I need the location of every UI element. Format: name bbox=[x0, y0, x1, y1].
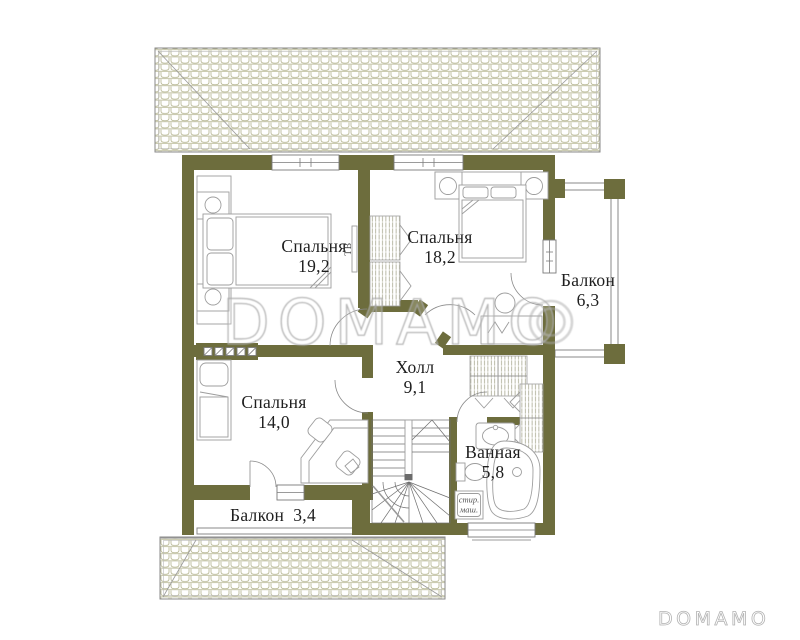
balcony-bottom-railing bbox=[197, 528, 355, 534]
room-area: 6,3 bbox=[561, 290, 615, 310]
window-top-right bbox=[394, 155, 463, 170]
door-balcony-bottom bbox=[250, 461, 276, 487]
room-name: Спальня bbox=[407, 227, 472, 247]
room-label-bathroom: Ванная 5,8 bbox=[465, 442, 521, 482]
stair-divider bbox=[405, 420, 412, 480]
room-label-hall: Холл 9,1 bbox=[396, 357, 435, 397]
room-area: 14,0 bbox=[241, 412, 306, 432]
door-bedroom3 bbox=[335, 380, 368, 413]
balcony-post bbox=[604, 179, 625, 199]
room-area: 3,4 bbox=[293, 505, 316, 525]
room-label-balcony-right: Балкон 6,3 bbox=[561, 270, 615, 310]
room-label-bedroom3: Спальня 14,0 bbox=[241, 392, 306, 432]
room-area: 19,2 bbox=[281, 256, 346, 276]
balcony-post bbox=[604, 344, 625, 364]
lamp bbox=[205, 289, 221, 305]
room-area: 5,8 bbox=[465, 462, 521, 482]
room-label-bedroom1: Спальня 19,2 bbox=[281, 236, 346, 276]
watermark-small: DOMAMO bbox=[658, 608, 769, 630]
bottom-roof bbox=[160, 537, 445, 599]
floor-plan: DOMAMO DOMAMO Спальня 19,2 Спальня 18,2 … bbox=[0, 0, 800, 640]
room-name: Холл bbox=[396, 357, 435, 377]
window-balcony-wall bbox=[543, 240, 556, 273]
window-bathroom bbox=[468, 523, 535, 540]
top-roof bbox=[155, 48, 600, 152]
room-area: 9,1 bbox=[396, 377, 435, 397]
window-top-left bbox=[272, 155, 339, 170]
single-bed bbox=[197, 360, 231, 440]
corner-desk bbox=[301, 416, 368, 483]
stair-winder-fan bbox=[372, 482, 450, 523]
room-name: Спальня bbox=[241, 392, 306, 412]
washing-machine-label: стир. маш. bbox=[459, 496, 480, 515]
room-label-bedroom2: Спальня 18,2 bbox=[407, 227, 472, 267]
room-name: Балкон bbox=[561, 270, 615, 290]
lamp bbox=[440, 178, 457, 195]
room-name: Балкон bbox=[230, 505, 284, 525]
floor-plan-drawing: DOMAMO DOMAMO bbox=[0, 0, 800, 640]
lamp bbox=[205, 197, 221, 213]
tv-label: ТВ bbox=[344, 242, 354, 255]
window-bedroom3 bbox=[277, 485, 304, 500]
staircase bbox=[372, 420, 450, 523]
lamp bbox=[526, 178, 543, 195]
room-area: 18,2 bbox=[407, 247, 472, 267]
watermark-large: DOMAMO bbox=[222, 286, 565, 359]
room-name: Ванная bbox=[465, 442, 521, 462]
room-name: Спальня bbox=[281, 236, 346, 256]
room-label-balcony-bottom: Балкон3,4 bbox=[230, 505, 316, 525]
